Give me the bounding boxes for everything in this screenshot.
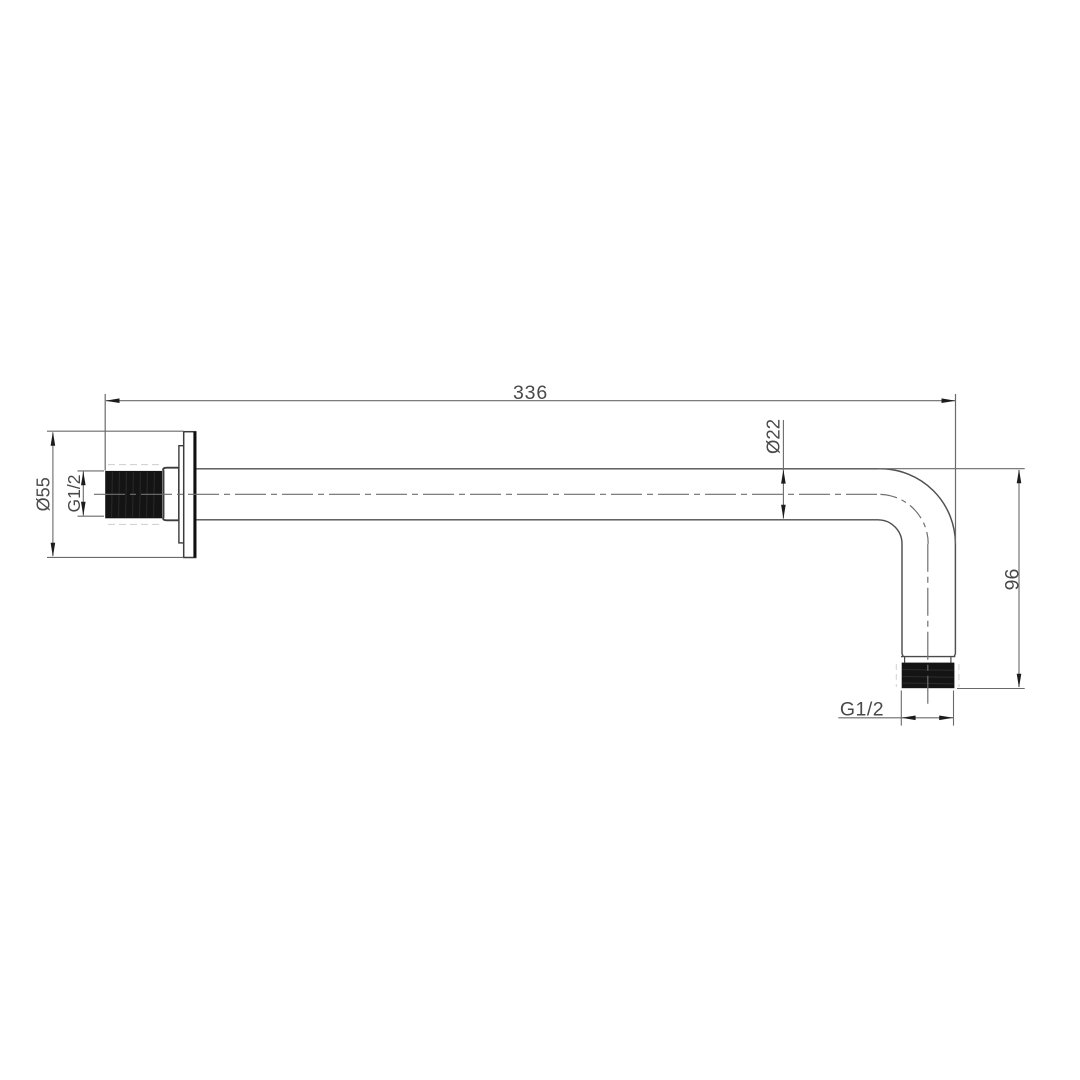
svg-text:G1/2: G1/2 [840, 699, 884, 721]
svg-text:G1/2: G1/2 [64, 475, 84, 513]
svg-text:Ø22: Ø22 [763, 419, 784, 454]
svg-text:336: 336 [513, 382, 548, 404]
svg-text:96: 96 [1001, 569, 1023, 591]
svg-text:Ø55: Ø55 [34, 477, 54, 511]
